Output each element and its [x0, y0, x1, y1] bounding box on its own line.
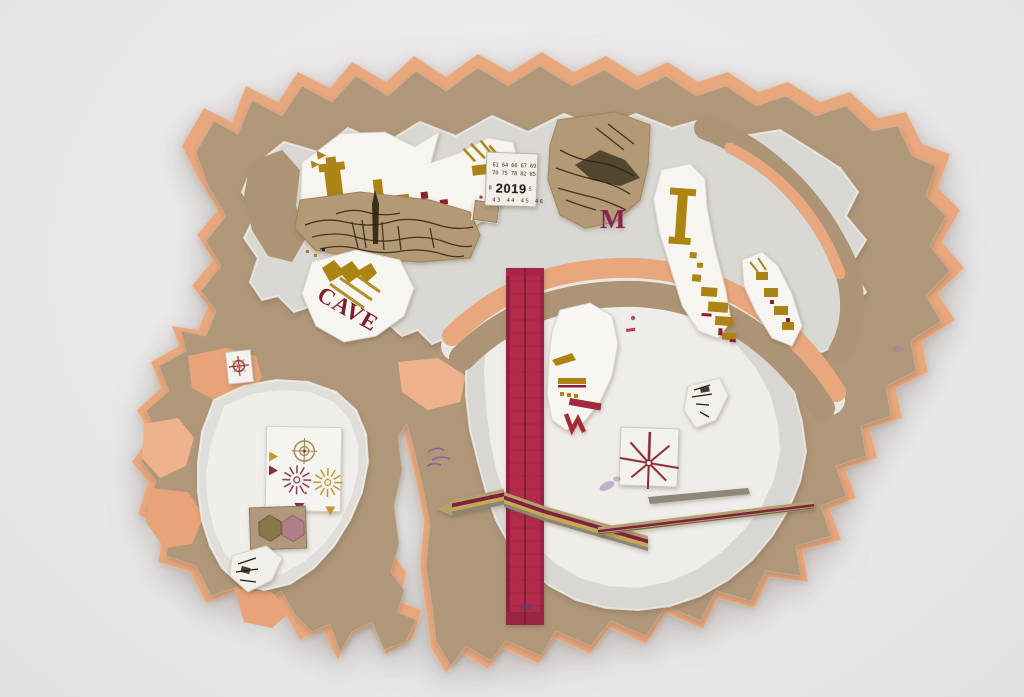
cardboard-map-collage: 61 64 66 67 69 70 75 78 82 85 8 2019 5 4…: [0, 0, 1024, 697]
vintage-year-label: 2019: [495, 180, 526, 196]
sunburst-card: [265, 426, 343, 515]
vintage-stamp-card: 61 64 66 67 69 70 75 78 82 85 8 2019 5 4…: [485, 152, 546, 207]
hexagon-card: [249, 506, 306, 550]
red-tape-strip: [506, 268, 544, 625]
compass-star-card: [619, 427, 680, 490]
crosshair-card: [225, 350, 253, 384]
gold-bar: [558, 378, 586, 384]
vintage-left-digit: 8: [489, 185, 492, 191]
m-letter-label: M: [600, 204, 625, 234]
vintage-right-digit: 5: [529, 187, 532, 193]
photo-backdrop: 61 64 66 67 69 70 75 78 82 85 8 2019 5 4…: [0, 0, 1024, 697]
red-underline: [558, 385, 586, 388]
